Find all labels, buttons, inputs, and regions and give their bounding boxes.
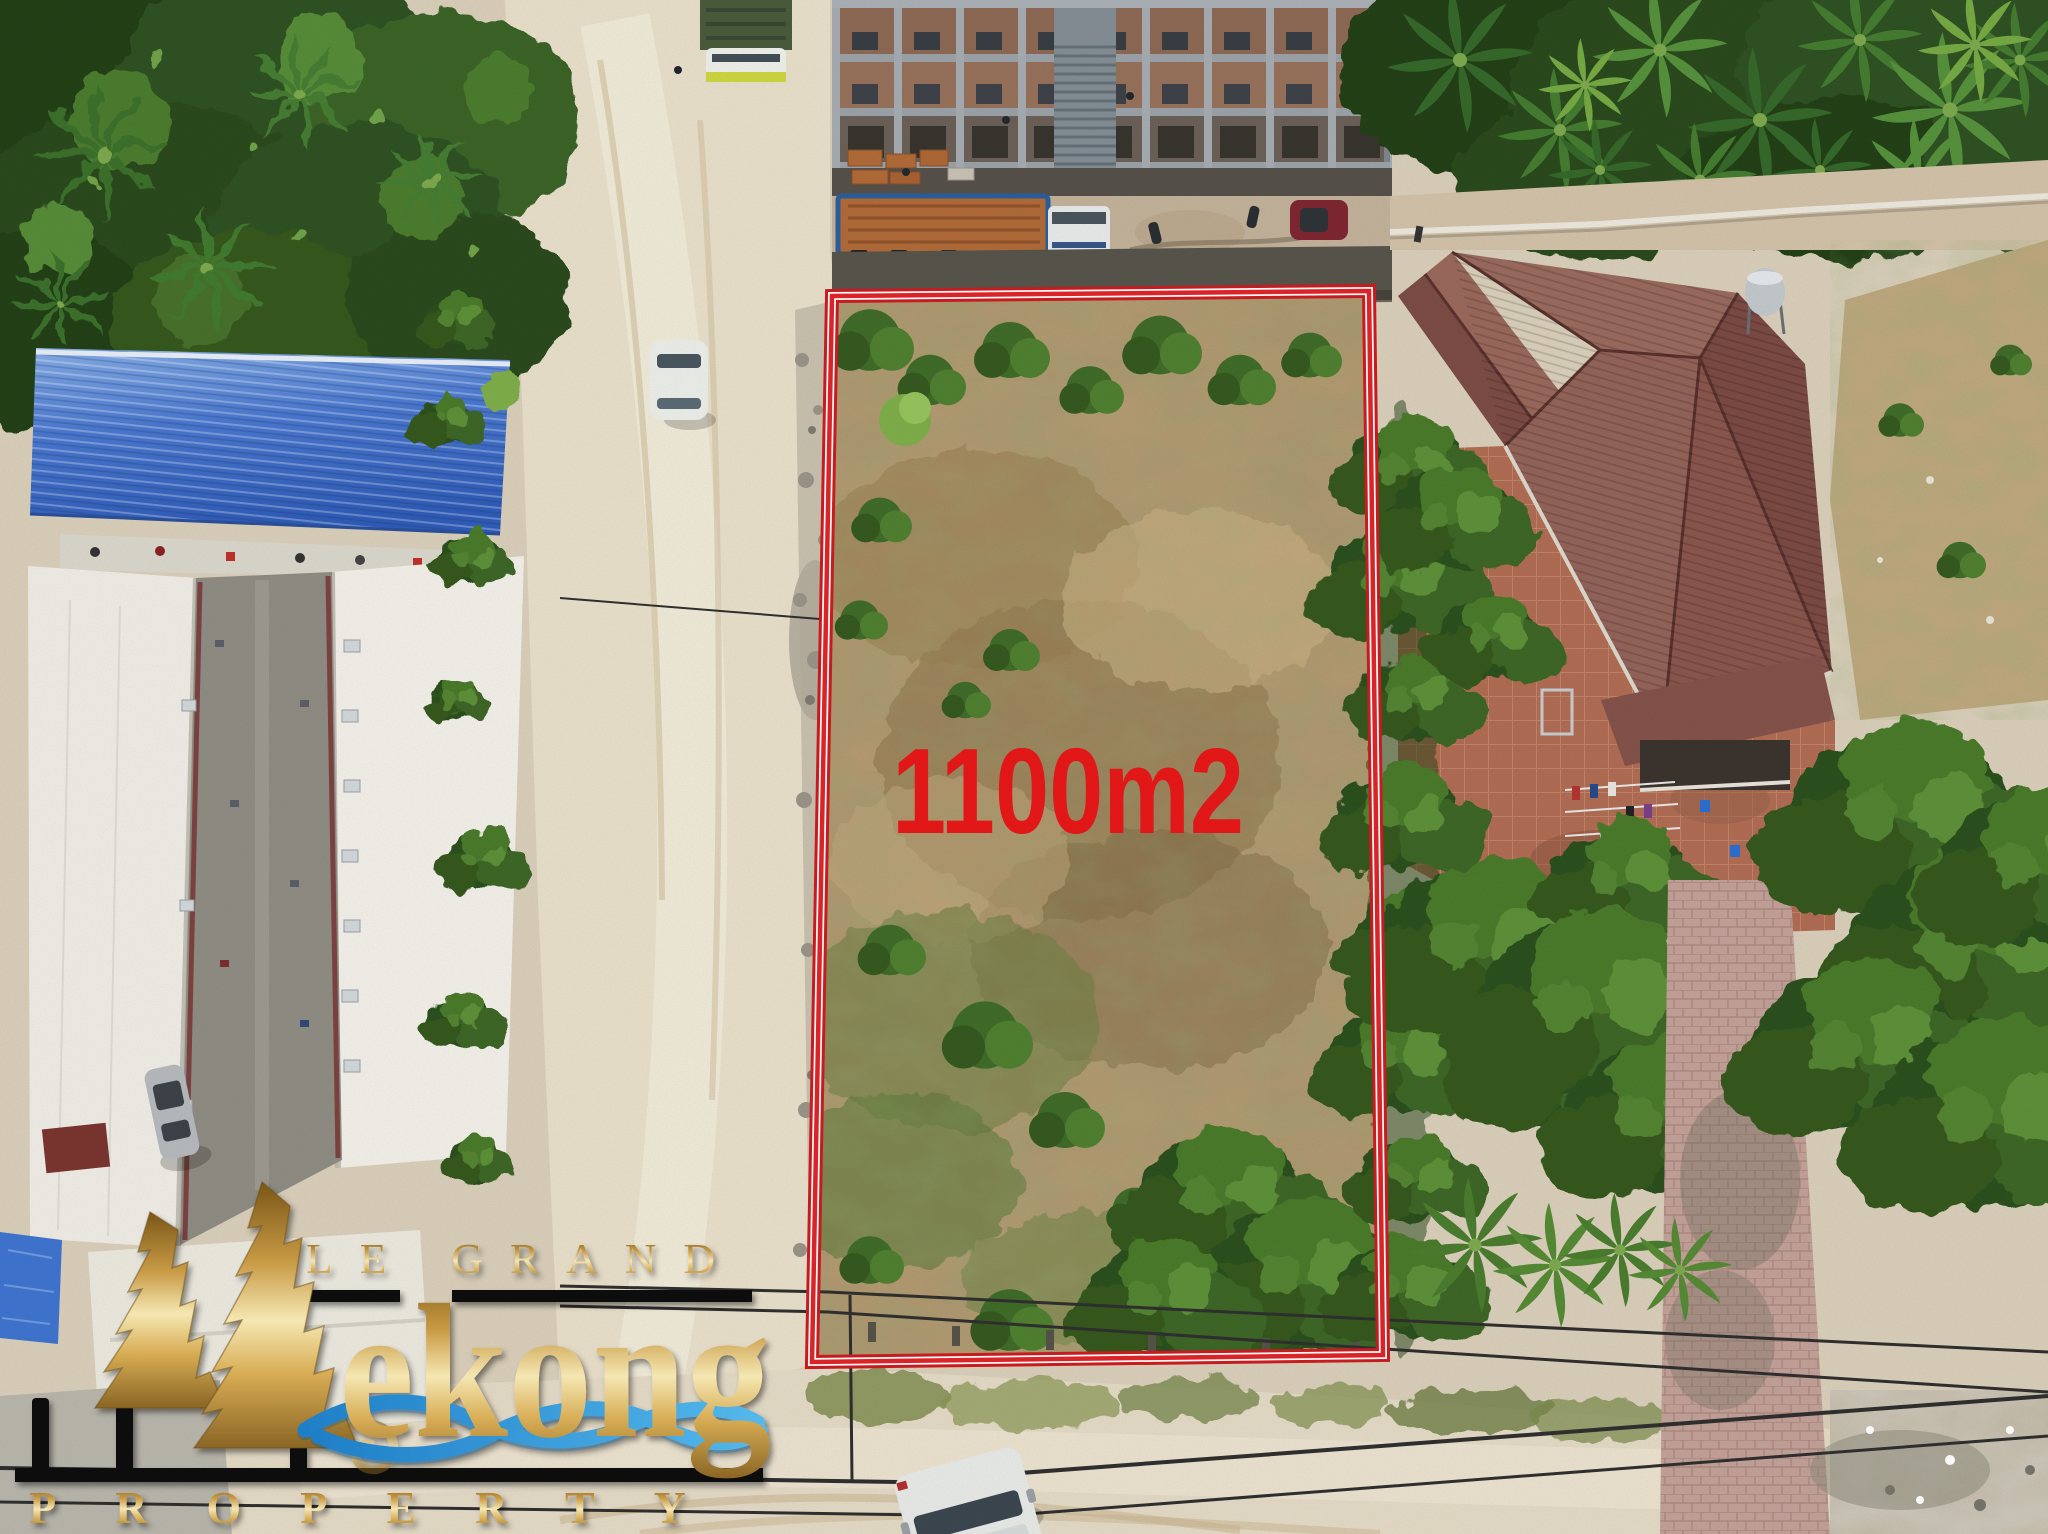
- aerial-photo: 1100m2 LE GRAND ekong PROPERTY: [0, 0, 2048, 1534]
- aerial-photo-stage: 1100m2 LE GRAND ekong PROPERTY: [0, 0, 2048, 1534]
- logo-brand-word: ekong: [339, 1265, 771, 1479]
- logo-bottom-line: PROPERTY: [29, 1483, 745, 1533]
